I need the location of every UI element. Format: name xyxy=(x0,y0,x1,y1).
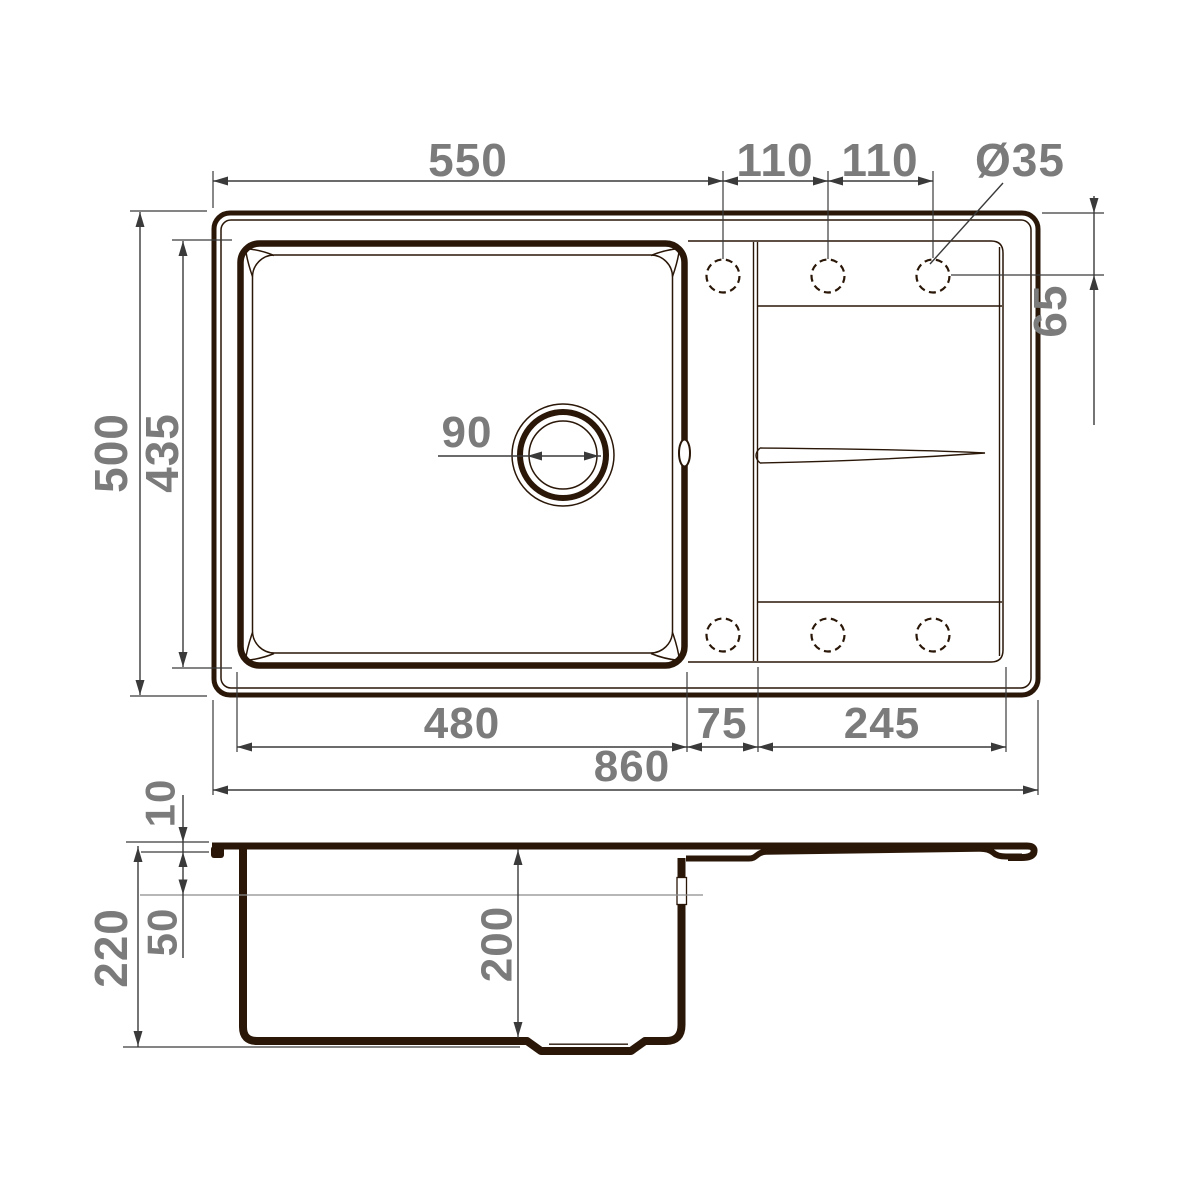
dim-90-label: 90 xyxy=(442,408,493,457)
section-left-lip xyxy=(211,846,224,858)
section-overflow-hole xyxy=(677,878,687,905)
dim-50-label: 50 xyxy=(139,908,186,957)
dim-75-label: 75 xyxy=(697,699,748,748)
dim-860-label: 860 xyxy=(594,742,670,791)
dim-480-label: 480 xyxy=(424,699,500,748)
dim-110-left-label: 110 xyxy=(736,134,813,186)
dim-550-label: 550 xyxy=(428,134,508,186)
dim-hole-diameter-label: Ø35 xyxy=(975,134,1065,186)
overflow-slot xyxy=(679,440,690,467)
dim-500-label: 500 xyxy=(85,413,137,493)
dim-10-label: 10 xyxy=(137,779,184,828)
dim-110-right-label: 110 xyxy=(841,134,918,186)
dim-245-label: 245 xyxy=(844,699,920,748)
dim-220-label: 220 xyxy=(85,908,137,988)
dim-435-label: 435 xyxy=(136,413,188,493)
sink-technical-drawing: 550 110 110 Ø35 500 435 65 90 480 75 245… xyxy=(0,0,1200,1200)
dim-65-label: 65 xyxy=(1024,284,1076,337)
dim-200-label: 200 xyxy=(473,906,522,982)
